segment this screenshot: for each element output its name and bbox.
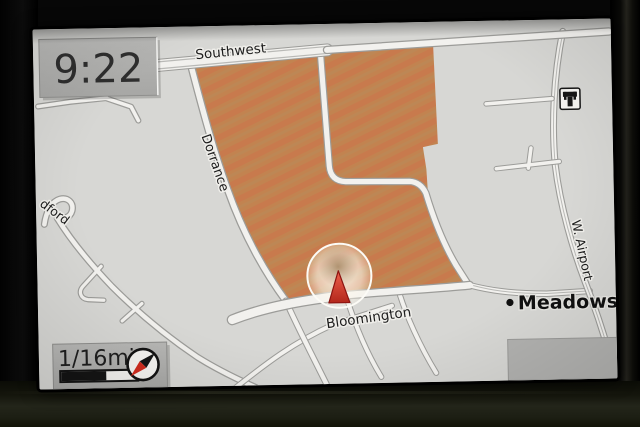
scale-label: 1/16mi — [58, 346, 135, 372]
scale-bar-fill — [61, 371, 106, 381]
navigation-touchscreen[interactable]: Southwest Dorrance Bloomington W. Airpor… — [33, 18, 618, 389]
poi-meadows: Meadows P — [506, 290, 617, 315]
clock-time: 9:22 — [53, 45, 144, 93]
rail-station-icon — [560, 88, 580, 109]
info-panel-blank — [508, 337, 618, 380]
scale-panel: 1/16mi — [53, 342, 171, 390]
clock-panel: 9:22 — [39, 37, 161, 100]
car-dashboard: Southwest Dorrance Bloomington W. Airpor… — [0, 0, 640, 427]
map-view: Southwest Dorrance Bloomington W. Airpor… — [33, 18, 618, 389]
compass-needle-icon — [127, 349, 159, 381]
vehicle-marker — [307, 243, 372, 308]
poi-label-meadows: Meadows P — [518, 290, 618, 314]
